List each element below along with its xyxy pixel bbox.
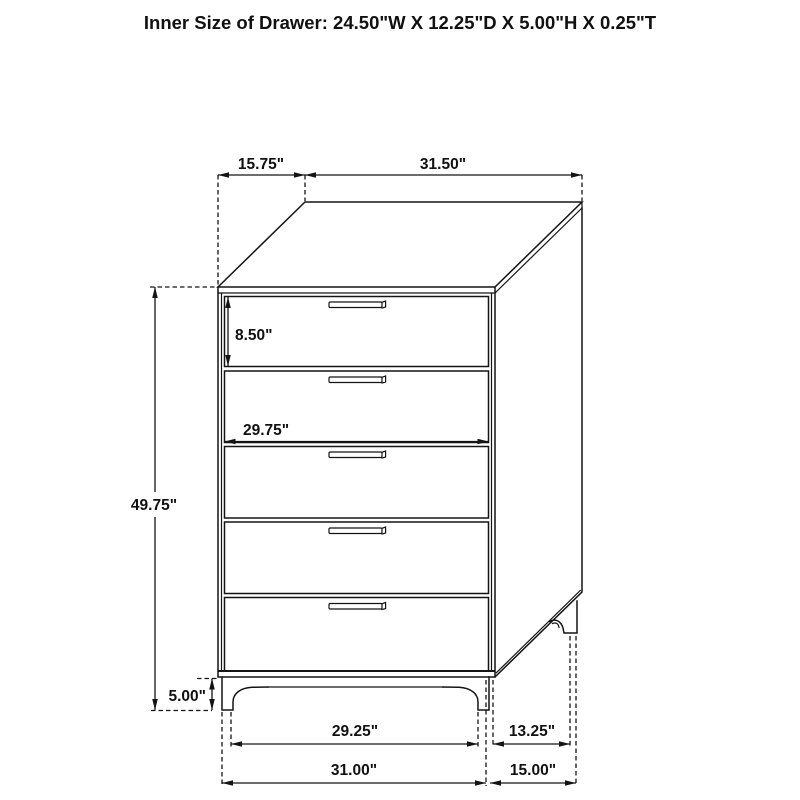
back-right-leg-curl bbox=[553, 623, 560, 628]
drawer-handle bbox=[329, 527, 386, 534]
front-left-leg bbox=[222, 677, 268, 710]
drawer-4 bbox=[225, 522, 489, 594]
side-panel-bottom-edge bbox=[496, 591, 580, 673]
dim-label-side-legs-span: 13.25" bbox=[509, 723, 555, 740]
handle-bar bbox=[329, 528, 382, 534]
arrowhead bbox=[209, 679, 215, 690]
drawer-3 bbox=[225, 447, 489, 519]
arrowhead bbox=[225, 439, 236, 445]
dim-side-legs-span: 13.25" bbox=[493, 723, 570, 747]
dim-label-front-legs-span: 29.25" bbox=[332, 723, 378, 740]
diagram-title: Inner Size of Drawer: 24.50"W X 12.25"D … bbox=[144, 12, 657, 33]
arrowhead bbox=[559, 741, 570, 747]
arrowhead bbox=[209, 699, 215, 710]
arrowhead bbox=[294, 172, 305, 178]
arrowhead bbox=[231, 741, 242, 747]
dim-label-drawer-height: 8.50" bbox=[235, 327, 273, 344]
handle-bar bbox=[329, 302, 382, 308]
drawer-handle bbox=[329, 451, 386, 458]
dim-leg-height: 5.00" bbox=[168, 679, 214, 711]
dim-label-leg-height: 5.00" bbox=[168, 688, 206, 705]
handle-bar bbox=[329, 377, 382, 383]
dim-label-base-depth: 15.00" bbox=[510, 762, 556, 779]
side-panel-outline bbox=[495, 208, 582, 677]
handle-bar bbox=[329, 452, 382, 458]
dim-label-top-depth: 15.75" bbox=[238, 156, 284, 173]
drawer-handle bbox=[329, 603, 386, 610]
arrowhead bbox=[478, 439, 489, 445]
front-face-stiles bbox=[222, 293, 492, 671]
dim-top-drawer-height: 8.50" bbox=[225, 297, 272, 366]
chest-dimension-diagram: Inner Size of Drawer: 24.50"W X 12.25"D … bbox=[0, 0, 800, 800]
arrowhead bbox=[152, 699, 158, 710]
dim-top-depth-and-width: 15.75" 31.50" bbox=[218, 156, 582, 178]
extension-lines bbox=[150, 175, 582, 786]
dim-label-base-width: 31.00" bbox=[331, 762, 377, 779]
dim-label-overall-height: 49.75" bbox=[131, 497, 177, 514]
arrowhead bbox=[493, 741, 504, 747]
drawer-5 bbox=[225, 598, 489, 672]
dim-label-top-width: 31.50" bbox=[420, 156, 466, 173]
handle-bar bbox=[329, 604, 382, 610]
arrowhead bbox=[152, 287, 158, 298]
arrowhead bbox=[305, 172, 316, 178]
dim-base-depth: 15.00" bbox=[490, 762, 576, 786]
top-surface bbox=[218, 202, 582, 287]
chest-drawing bbox=[218, 202, 582, 710]
drawer-handle bbox=[329, 376, 386, 383]
dimension-diagram-page: Inner Size of Drawer: 24.50"W X 12.25"D … bbox=[0, 0, 800, 800]
drawer-handle bbox=[329, 301, 386, 308]
arrowhead bbox=[571, 172, 582, 178]
front-right-leg bbox=[443, 677, 489, 710]
dim-overall-height: 49.75" bbox=[127, 287, 183, 710]
dim-drawer-inner-width: 29.75" bbox=[225, 422, 489, 444]
arrowhead bbox=[565, 780, 576, 786]
top-panel-lip bbox=[218, 202, 582, 293]
dim-label-inner-width: 29.75" bbox=[243, 422, 289, 439]
arrowhead bbox=[222, 780, 233, 786]
arrowhead bbox=[467, 741, 478, 747]
arrowhead bbox=[225, 355, 231, 366]
dim-base-width: 31.00" bbox=[222, 762, 486, 786]
front-face-outline bbox=[218, 287, 495, 677]
arrowhead bbox=[475, 780, 486, 786]
arrowhead bbox=[225, 297, 231, 308]
arrowhead bbox=[490, 780, 501, 786]
arrowhead bbox=[218, 172, 229, 178]
dim-front-legs-span: 29.25" bbox=[231, 723, 478, 747]
